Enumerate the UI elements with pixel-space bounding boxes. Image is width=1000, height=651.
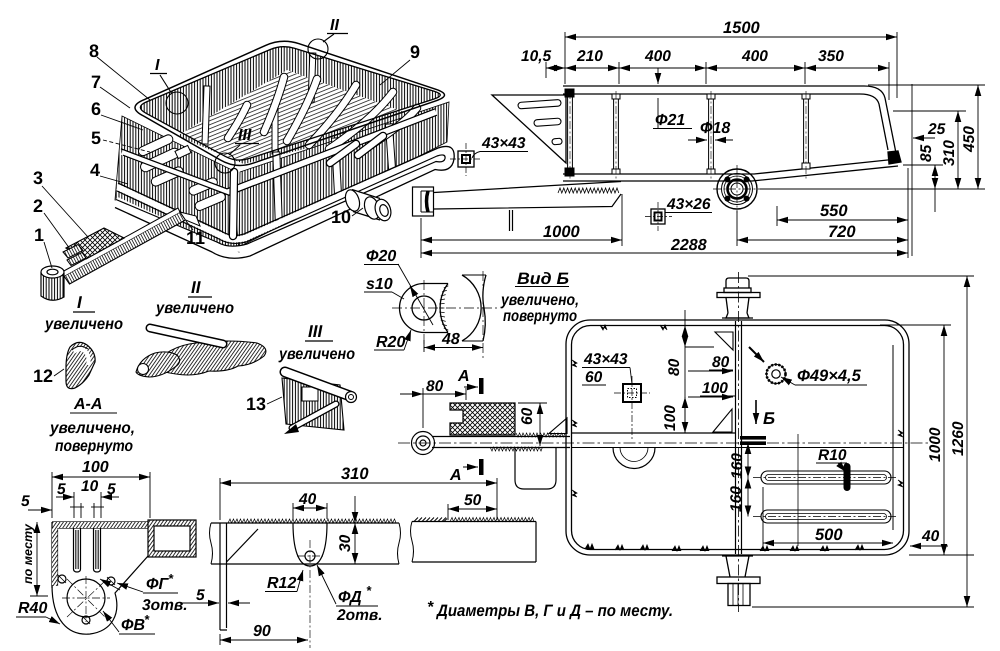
svg-text:Вид Б: Вид Б — [517, 270, 569, 288]
svg-text:1000: 1000 — [927, 427, 944, 462]
svg-text:4: 4 — [90, 160, 100, 180]
svg-text:увеличено: увеличено — [155, 300, 234, 317]
svg-text:5: 5 — [107, 481, 116, 498]
svg-text:III: III — [238, 127, 252, 144]
svg-text:ФГ: ФГ — [146, 576, 169, 593]
svg-text:1: 1 — [34, 225, 44, 245]
svg-text:Ф20: Ф20 — [366, 248, 396, 265]
svg-text:400: 400 — [741, 48, 768, 65]
svg-text:160: 160 — [729, 453, 746, 479]
svg-text:210: 210 — [576, 48, 603, 65]
svg-text:25: 25 — [927, 121, 946, 138]
svg-text:ФД: ФД — [338, 589, 362, 606]
svg-text:А-А: А-А — [73, 396, 102, 413]
svg-text:7: 7 — [91, 72, 101, 92]
svg-text:2отв.: 2отв. — [336, 607, 383, 624]
svg-text:10,5: 10,5 — [521, 48, 552, 65]
svg-text:увеличено,: увеличено, — [500, 292, 579, 309]
svg-text:50: 50 — [464, 492, 482, 509]
svg-text:500: 500 — [815, 526, 843, 544]
svg-text:60: 60 — [519, 407, 536, 425]
svg-text:9: 9 — [410, 42, 420, 62]
svg-text:увеличено: увеличено — [44, 316, 123, 333]
svg-text:400: 400 — [644, 48, 671, 65]
svg-text:5: 5 — [21, 493, 30, 510]
svg-text:100: 100 — [662, 405, 679, 431]
svg-text:повернуто: повернуто — [503, 308, 577, 325]
svg-text:ФВ: ФВ — [121, 617, 145, 634]
svg-text:1000: 1000 — [543, 223, 581, 241]
svg-text:5: 5 — [91, 128, 101, 148]
svg-text:10: 10 — [81, 478, 99, 495]
svg-text:40: 40 — [921, 528, 940, 545]
svg-text:80: 80 — [712, 354, 730, 371]
svg-text:550: 550 — [820, 202, 848, 220]
svg-text:1260: 1260 — [950, 421, 967, 456]
svg-text:43×43: 43×43 — [481, 135, 526, 152]
svg-text:2: 2 — [33, 196, 43, 216]
svg-text:13: 13 — [246, 394, 266, 414]
svg-text:Б: Б — [763, 409, 775, 428]
svg-text:100: 100 — [702, 380, 728, 397]
svg-text:90: 90 — [253, 623, 271, 640]
svg-text:80: 80 — [426, 378, 444, 395]
svg-text:5: 5 — [57, 481, 66, 498]
svg-text:12: 12 — [33, 366, 53, 386]
svg-text:А: А — [449, 467, 462, 484]
svg-text:11: 11 — [186, 228, 205, 248]
svg-text:увеличено,: увеличено, — [49, 420, 135, 437]
svg-text:s10: s10 — [366, 276, 393, 293]
svg-text:48: 48 — [441, 331, 460, 348]
svg-text:43×26: 43×26 — [666, 196, 711, 213]
svg-text:R10: R10 — [818, 447, 847, 464]
svg-text:по месту: по месту — [21, 523, 35, 584]
svg-text:II: II — [330, 17, 339, 34]
svg-text:85: 85 — [918, 144, 935, 162]
svg-text:6: 6 — [91, 99, 101, 119]
svg-text:А: А — [457, 368, 470, 385]
svg-text:350: 350 — [818, 48, 844, 65]
svg-text:720: 720 — [828, 223, 856, 241]
svg-text:3: 3 — [33, 168, 43, 188]
svg-text:III: III — [308, 322, 323, 341]
svg-text:5: 5 — [196, 587, 205, 604]
svg-text:Ф49×4,5: Ф49×4,5 — [797, 367, 862, 385]
svg-text:Ф21: Ф21 — [655, 112, 685, 129]
svg-text:43×43: 43×43 — [583, 351, 628, 368]
svg-text:2288: 2288 — [670, 237, 707, 254]
svg-text:II: II — [191, 278, 202, 297]
svg-text:увеличено: увеличено — [278, 346, 355, 363]
svg-text:8: 8 — [89, 41, 99, 61]
svg-text:10: 10 — [331, 207, 351, 227]
svg-text:100: 100 — [82, 459, 109, 476]
svg-text:1500: 1500 — [723, 19, 761, 37]
svg-text:450: 450 — [961, 126, 978, 153]
svg-text:Диаметры В, Г и Д – по месту.: Диаметры В, Г и Д – по месту. — [435, 602, 673, 620]
svg-text:I: I — [155, 57, 160, 74]
svg-text:60: 60 — [585, 369, 603, 386]
svg-text:30: 30 — [337, 534, 354, 552]
svg-text:*: * — [427, 599, 434, 616]
svg-text:повернуто: повернуто — [55, 438, 133, 455]
svg-text:80: 80 — [666, 358, 683, 376]
svg-text:R12: R12 — [267, 575, 296, 592]
svg-text:40: 40 — [298, 491, 317, 508]
svg-text:310: 310 — [941, 140, 958, 166]
svg-text:Ф18: Ф18 — [700, 120, 730, 137]
svg-text:R20: R20 — [376, 334, 405, 351]
svg-text:160: 160 — [728, 486, 745, 512]
svg-text:R40: R40 — [18, 600, 47, 617]
svg-text:310: 310 — [341, 465, 369, 483]
